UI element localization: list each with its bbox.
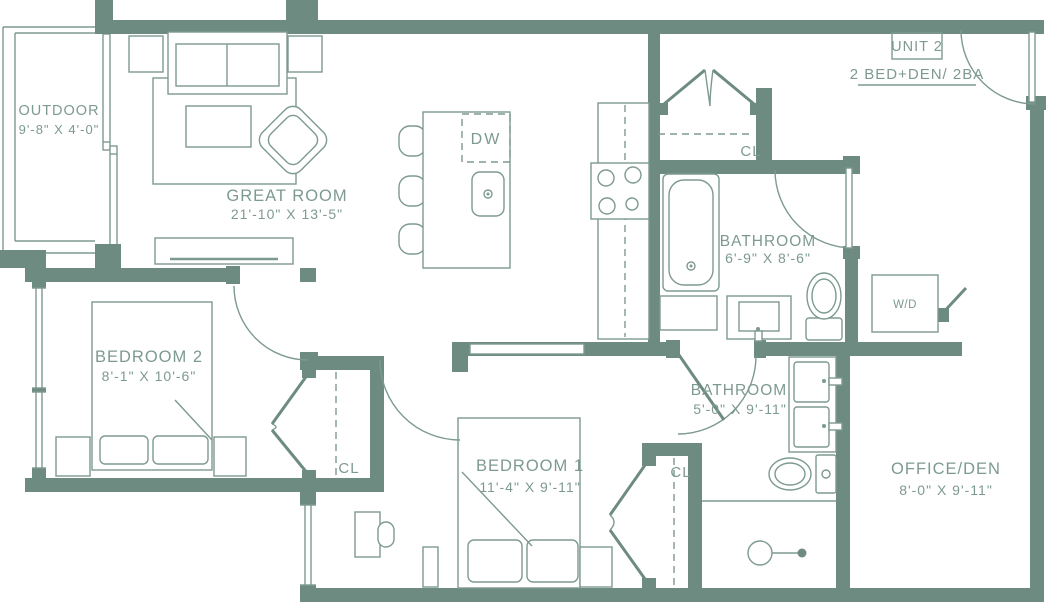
stool [399, 224, 426, 254]
room-name: BATHROOM [720, 233, 816, 250]
room-dims: 21'-10" X 13'-5" [231, 206, 343, 222]
bathtub [663, 174, 719, 291]
tv-console [155, 238, 293, 264]
room-name: GREAT ROOM [226, 187, 347, 205]
closet-label-bedroom2: CL [338, 460, 359, 477]
side-table-right [288, 36, 322, 72]
toilet [806, 273, 842, 340]
room-name: BEDROOM 2 [95, 348, 203, 366]
room-dims: 6'-9" X 8'-6" [725, 250, 811, 266]
vanity-sink [727, 296, 791, 341]
double-vanity [789, 357, 842, 452]
nightstand [423, 547, 438, 587]
sliding-door [103, 34, 117, 250]
room-label-bathroom-2: BATHROOM 5'-0" X 9'-11" [691, 382, 787, 417]
great-room-furniture [129, 32, 331, 264]
room-name: OUTDOOR [18, 103, 99, 119]
room-label-office-den: OFFICE/DEN 8'-0" X 9'-11" [891, 460, 1001, 498]
room-label-bathroom-1: BATHROOM 6'-9" X 8'-6" [720, 233, 816, 266]
bedroom1-door-arc [380, 360, 460, 440]
side-table-left [129, 36, 163, 72]
toilet [769, 455, 836, 493]
hall-closet [658, 70, 754, 134]
hall-desk [355, 512, 394, 557]
shower-head [748, 541, 807, 565]
sofa [168, 32, 287, 94]
bedroom2-window-upper [32, 288, 46, 388]
bed [458, 418, 580, 588]
kitchen-counter [598, 103, 649, 339]
room-dims: 8'-1" X 10'-6" [102, 368, 197, 384]
room-name: BEDROOM 1 [476, 457, 584, 475]
room-dims: 11'-4" X 9'-11" [479, 479, 580, 495]
room-dims: 9'-8" X 4'-0" [19, 122, 100, 137]
washer-dryer-label: W/D [893, 299, 917, 311]
linen-cabinet [660, 296, 717, 330]
unit-name: UNIT 2 [891, 39, 943, 55]
bed [92, 302, 212, 470]
room-dims: 8'-0" X 9'-11" [899, 482, 993, 498]
nightstand [214, 437, 246, 476]
room-dims: 5'-0" X 9'-11" [693, 401, 787, 417]
island-sink [472, 172, 504, 216]
stove [591, 163, 649, 219]
closet-label-bedroom1: CL [670, 464, 691, 481]
bathroom1-door-leaf [846, 168, 852, 248]
unit-title: UNIT 2 2 BED+DEN/ 2BA [850, 33, 984, 85]
bedroom-2-furniture [56, 302, 246, 476]
office-door-leaf [940, 288, 966, 316]
accent-chair [255, 102, 331, 178]
nightstand [56, 437, 90, 476]
bedroom2-door-arc [234, 286, 308, 360]
room-name: BATHROOM [691, 382, 787, 399]
floor-plan-drawing: UNIT 2 2 BED+DEN/ 2BA OUTDOOR 9'-8" X 4'… [0, 0, 1054, 608]
bedroom1-closet [610, 458, 674, 586]
room-label-great-room: GREAT ROOM 21'-10" X 13'-5" [226, 187, 347, 222]
closet-label-hall: CL [740, 143, 761, 160]
bedroom2-closet [272, 372, 336, 478]
floor-plan-page: UNIT 2 2 BED+DEN/ 2BA OUTDOOR 9'-8" X 4'… [0, 0, 1054, 608]
entry-door-leaf [1029, 32, 1035, 102]
room-label-outdoor: OUTDOOR 9'-8" X 4'-0" [18, 103, 99, 137]
dishwasher-label: DW [471, 131, 502, 148]
kitchen [399, 103, 649, 339]
stool [399, 126, 426, 156]
balcony-railing [3, 27, 95, 253]
dresser [470, 344, 584, 354]
room-name: OFFICE/DEN [891, 460, 1001, 478]
stool [399, 176, 426, 206]
bedroom2-window-lower [32, 392, 46, 468]
nightstand [580, 547, 612, 587]
unit-type: 2 BED+DEN/ 2BA [850, 66, 984, 83]
bedroom1-window [300, 505, 316, 585]
coffee-table [186, 106, 251, 147]
